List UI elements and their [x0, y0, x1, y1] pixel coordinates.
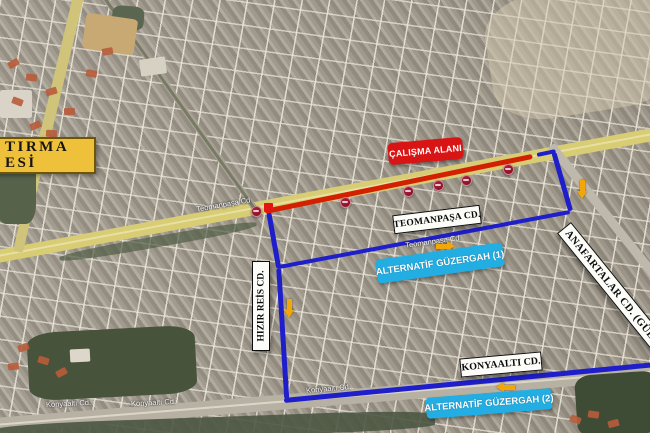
- no-entry-sign-icon: [251, 206, 262, 217]
- hospital-label-text: TIRMA ESİ: [0, 139, 94, 171]
- large-building: [139, 56, 167, 76]
- street-label-hizir-reis-text: HIZIR REİS CD.: [256, 270, 266, 341]
- orange-roof-building: [8, 362, 20, 370]
- arrow-shaft: [436, 244, 447, 249]
- park-bottom-left: [26, 325, 197, 402]
- no-entry-sign-icon: [403, 186, 414, 197]
- arrow-shaft: [287, 299, 292, 310]
- street-label-hizir-reis: HIZIR REİS CD.: [252, 261, 270, 351]
- no-entry-sign-icon: [503, 164, 514, 175]
- arrow-head: [496, 382, 504, 392]
- arrow-head: [577, 191, 587, 199]
- hospital-label-line1: TIRMA: [5, 139, 94, 155]
- hospital-label: TIRMA ESİ: [0, 137, 96, 174]
- closure-square-marker: [264, 203, 273, 212]
- orange-roof-building: [588, 410, 600, 418]
- no-entry-sign-icon: [340, 197, 351, 208]
- no-entry-sign-icon: [461, 175, 472, 186]
- no-entry-sign-icon: [433, 180, 444, 191]
- orange-roof-building: [26, 73, 38, 81]
- arrow-shaft: [504, 385, 515, 390]
- arrow-head: [284, 310, 294, 318]
- building-in-park: [70, 348, 91, 362]
- satellite-map: Teomanpaşa CdTeomanpaşa CdKonyaaltı Cd.K…: [0, 0, 650, 433]
- arrow-shaft: [580, 180, 585, 191]
- orange-roof-building: [64, 108, 75, 115]
- hospital-label-line2: ESİ: [5, 155, 94, 171]
